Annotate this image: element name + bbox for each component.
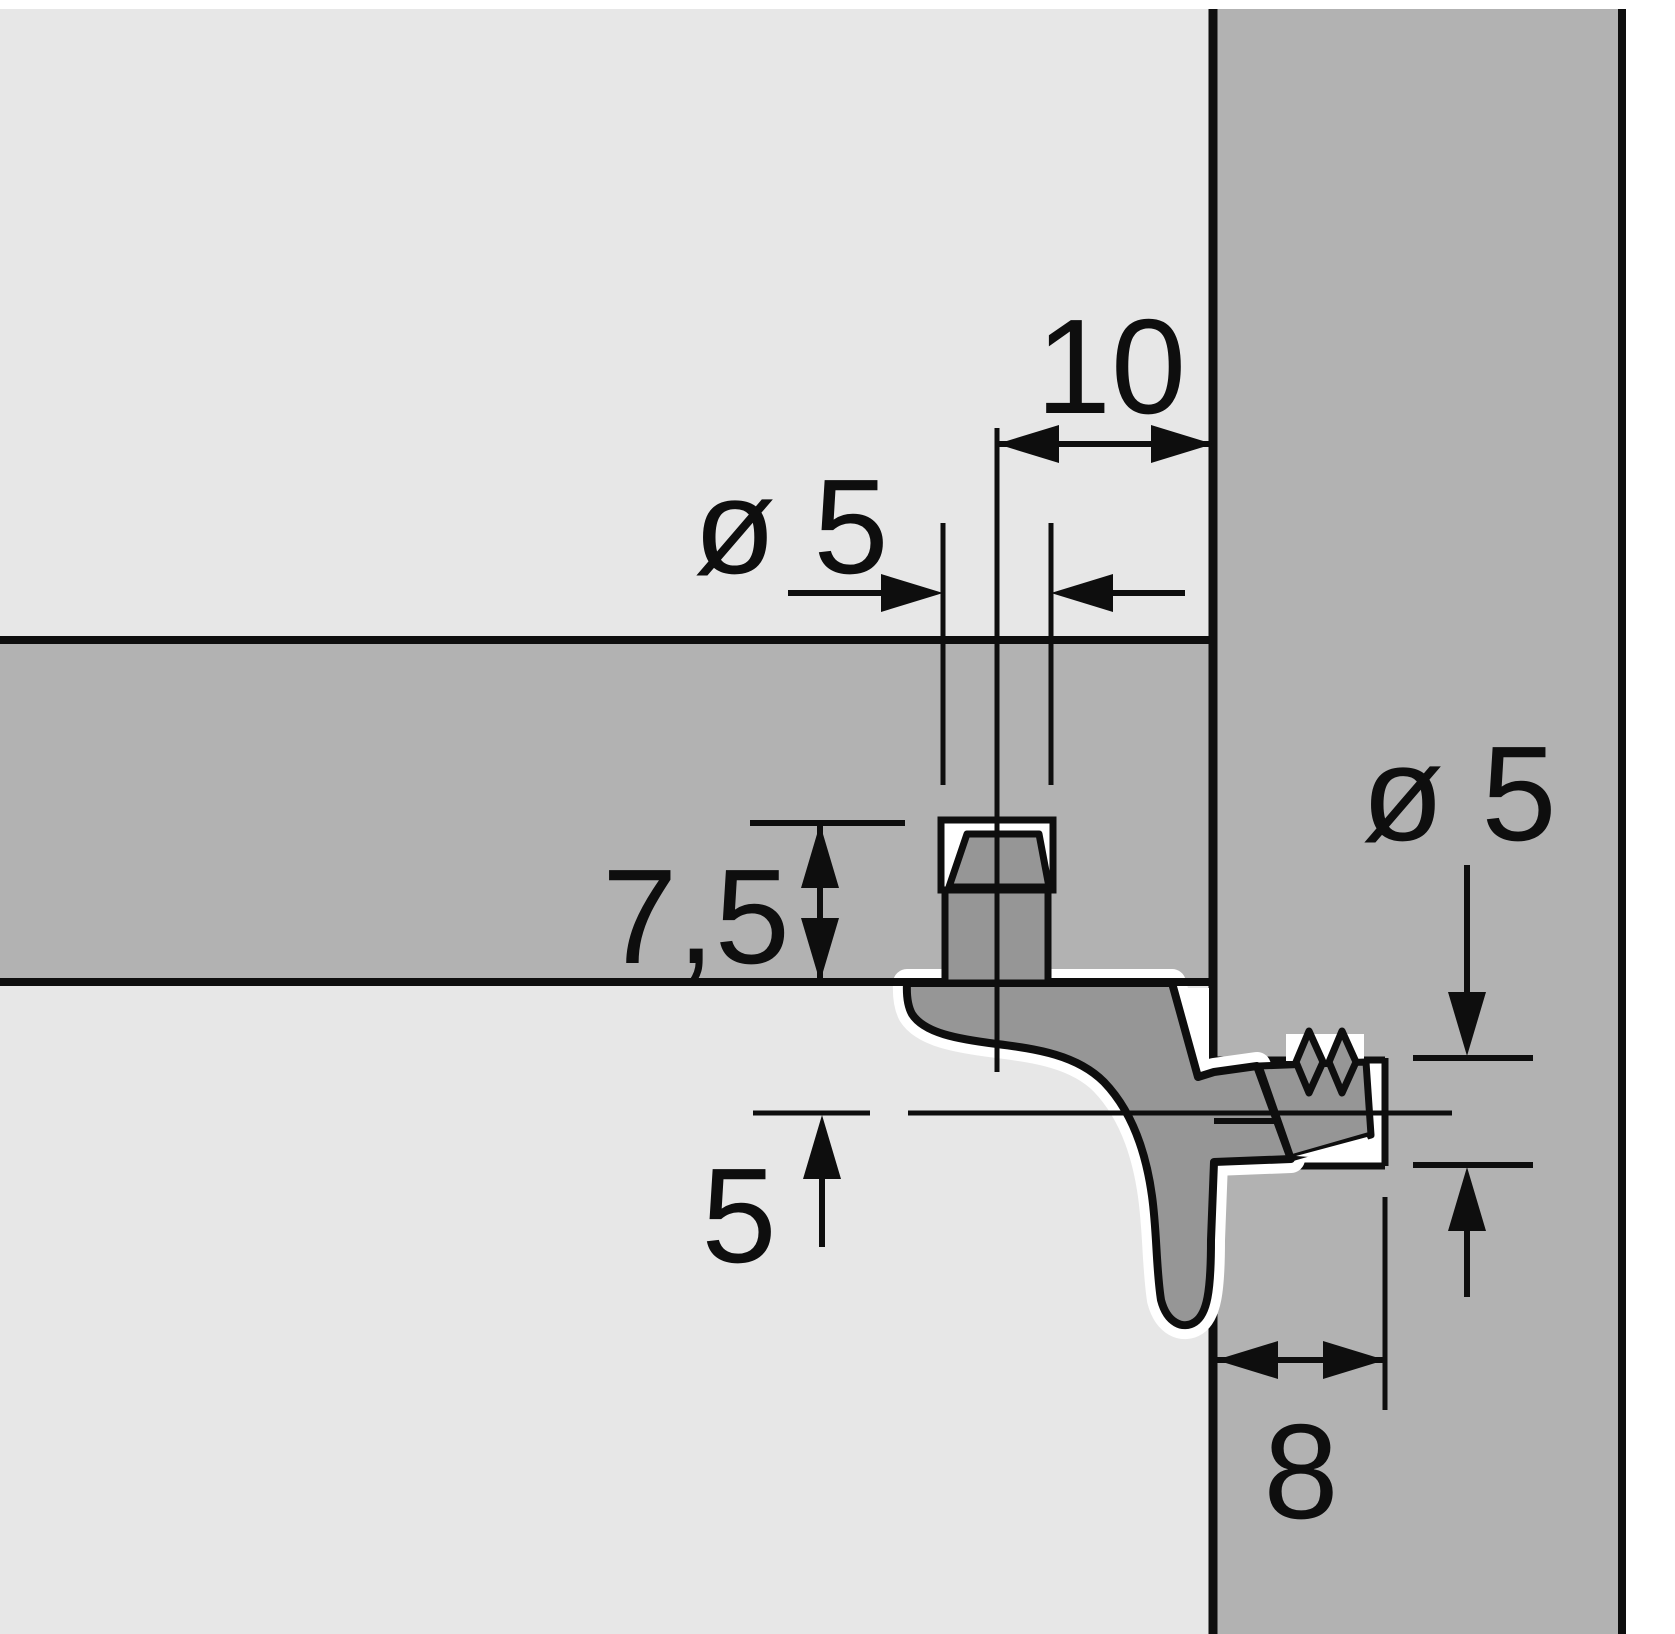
right-margin [1626, 9, 1675, 1634]
shelf-support-diagram: 10 ø 5 7,5 ø 5 5 8 [0, 0, 1675, 1634]
dim-8-label: 8 [1263, 1396, 1338, 1547]
dia5-top-label: ø 5 [693, 451, 888, 602]
dim-75-label: 7,5 [602, 841, 790, 992]
dim-10-label: 10 [1036, 291, 1186, 442]
top-margin [0, 0, 1675, 9]
diagram-canvas: 10 ø 5 7,5 ø 5 5 8 [0, 0, 1675, 1634]
dia5-side-label: ø 5 [1361, 718, 1556, 869]
dim-5-label: 5 [701, 1140, 776, 1291]
